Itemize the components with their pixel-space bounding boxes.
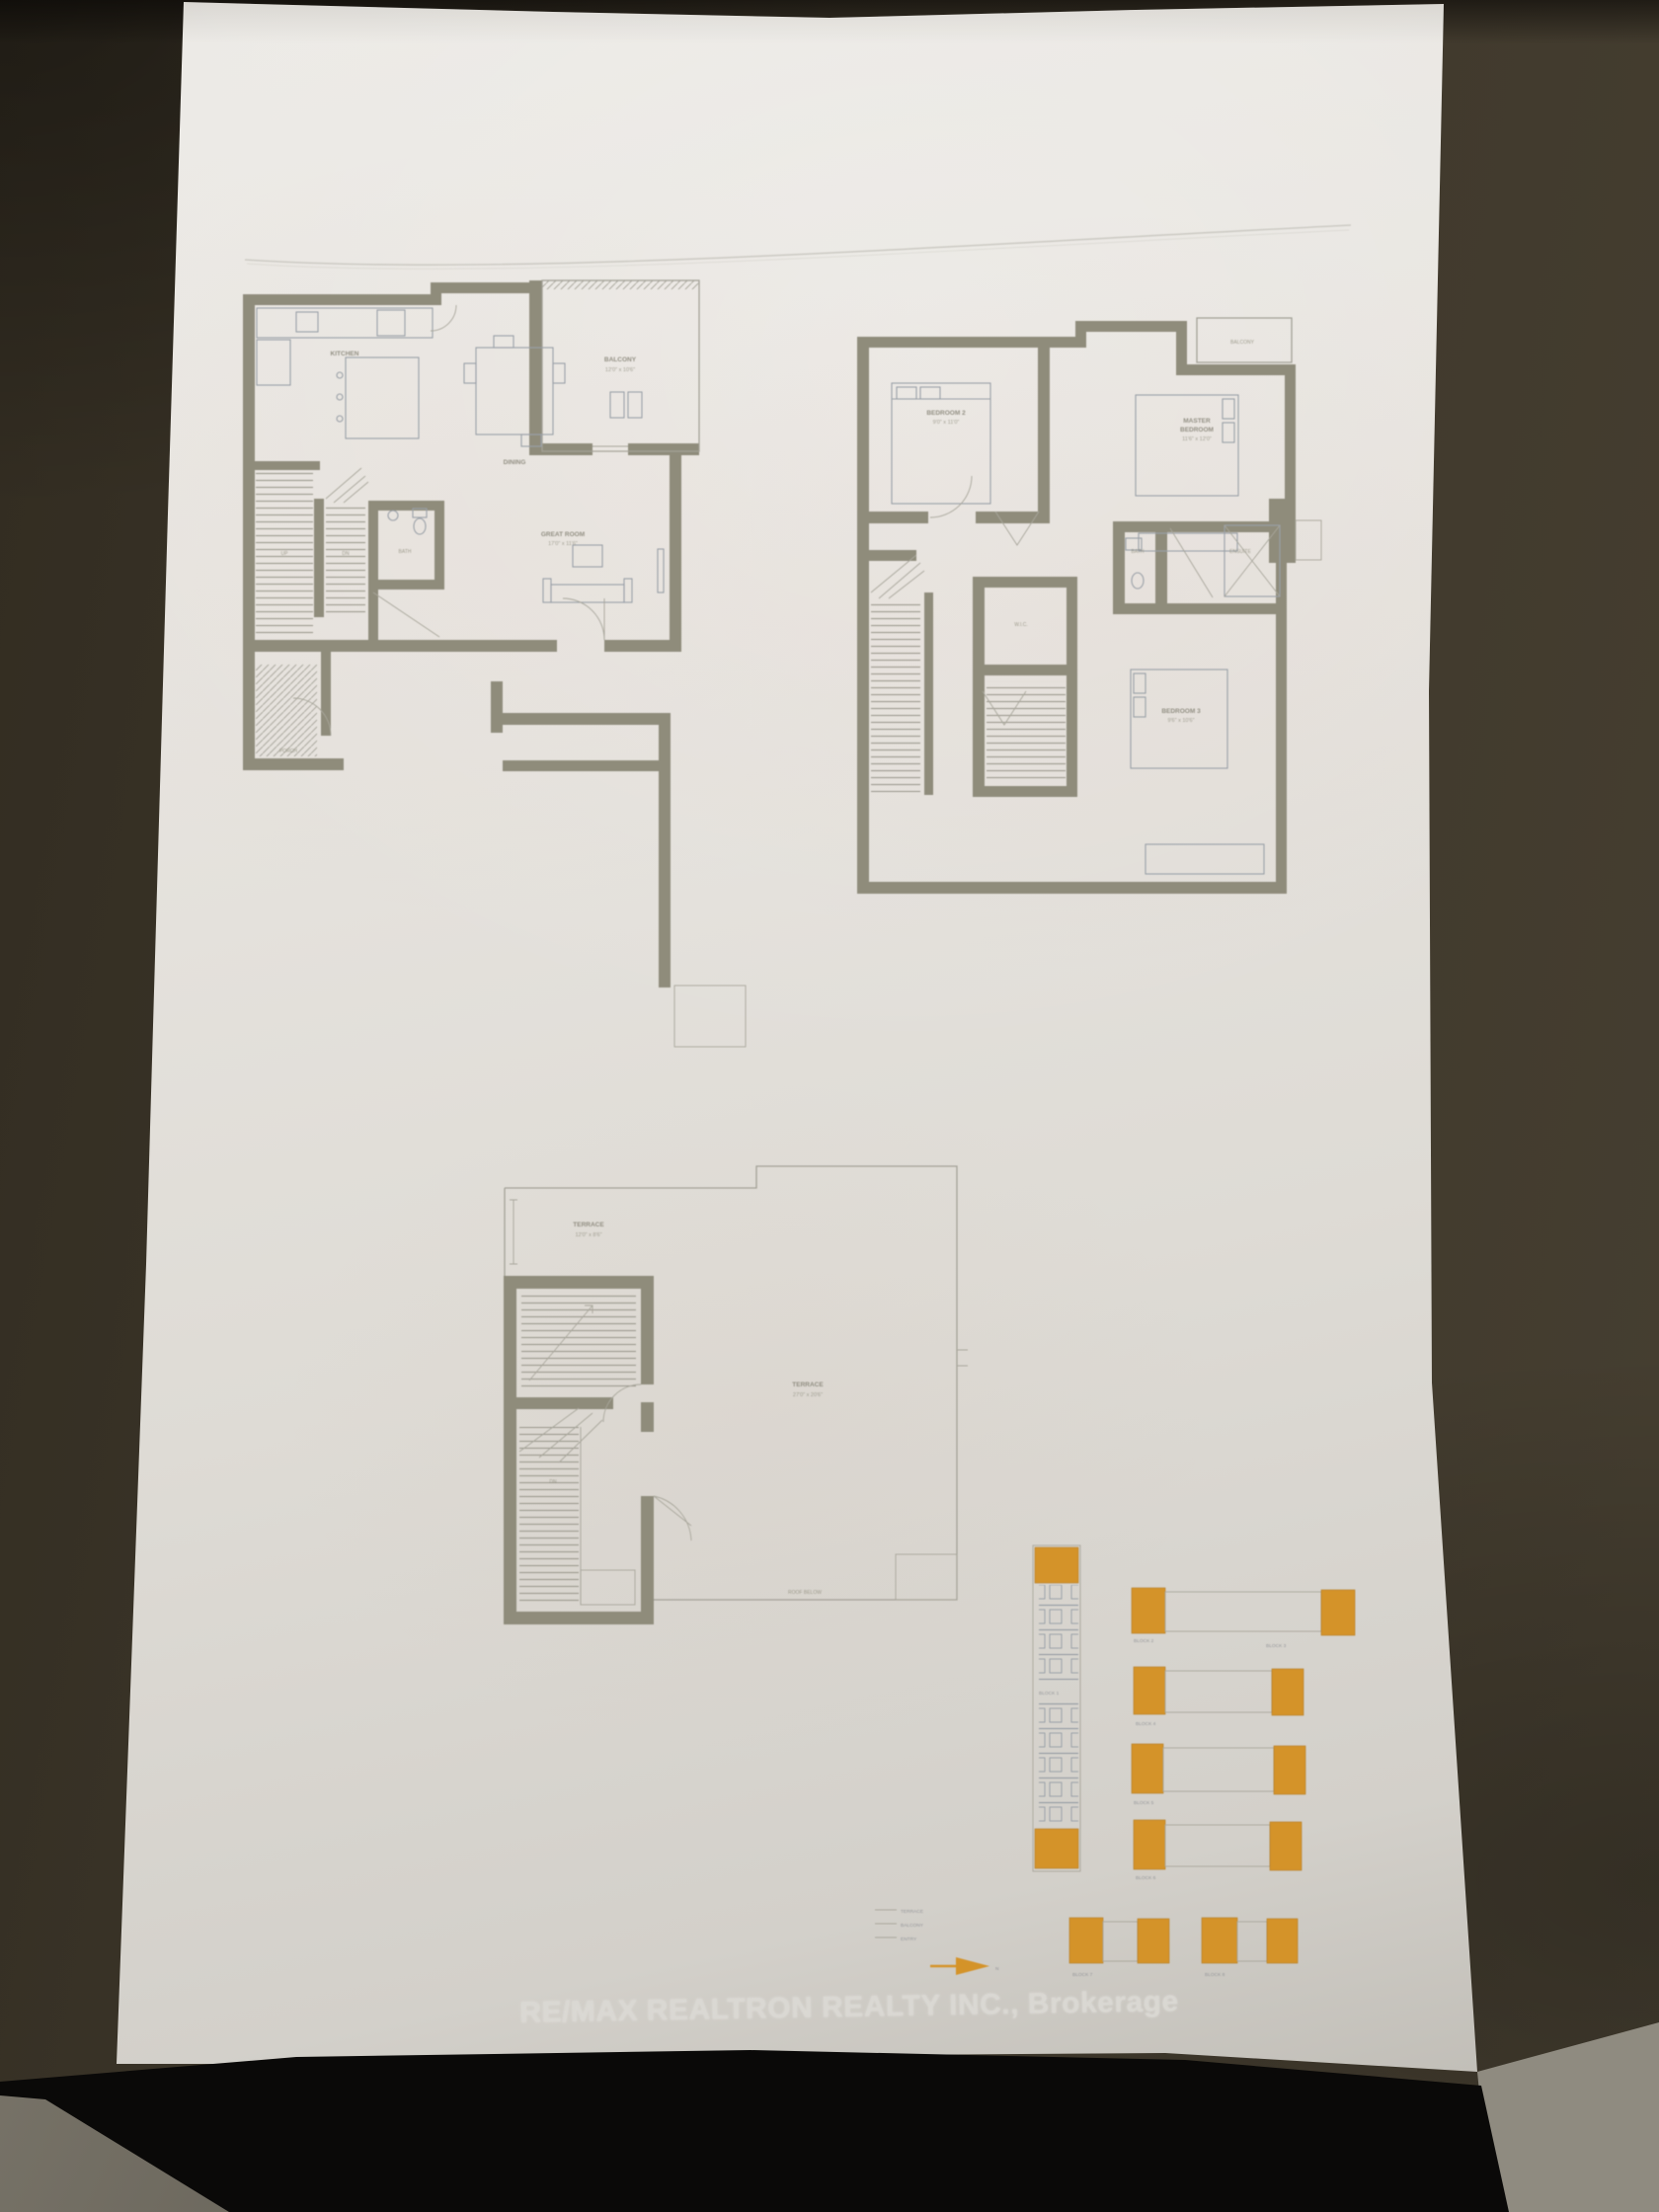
room-dims-terrace-main: 27'0" x 20'6": [793, 1392, 823, 1398]
room-label-master-2: BEDROOM: [1180, 427, 1214, 434]
balcony-outline: [542, 280, 699, 451]
room-label-balcony: BALCONY: [604, 356, 637, 363]
great-room-furniture: [543, 545, 664, 602]
room-label-bedroom3: BEDROOM 3: [1161, 708, 1201, 715]
room-label-master-1: MASTER: [1183, 418, 1211, 425]
room-label-powder: BATH: [399, 549, 412, 555]
legend-item: TERRACE: [901, 1909, 923, 1915]
room-label-balcony2: BALCONY: [1230, 340, 1255, 346]
walls: [857, 321, 1296, 894]
room-label-dining: DINING: [504, 459, 526, 466]
plan-terrace: TERRACE 12'0" x 8'6" TERRACE 27'0" x 20'…: [504, 1166, 968, 1624]
site-row-2: BLOCK 4: [1134, 1667, 1303, 1727]
site-row-1: BLOCK 2 BLOCK 3: [1132, 1588, 1355, 1649]
legend-item: ENTRY: [901, 1936, 917, 1942]
block-label: BLOCK 7: [1072, 1972, 1093, 1978]
block-label: BLOCK 3: [1266, 1643, 1287, 1649]
plan-main-floor: KITCHEN DINING GREAT ROOM 17'0" x 11'6" …: [243, 280, 746, 1047]
powder-room-fixtures: [373, 509, 439, 637]
room-label-porch: PORCH: [279, 749, 297, 754]
room-label-ensuite: ENSUITE: [1229, 549, 1251, 555]
block-label: BLOCK 5: [1134, 1800, 1154, 1806]
stairs-up-label: UP: [281, 551, 289, 557]
room-label-terrace-main: TERRACE: [792, 1382, 824, 1388]
site-pair-right: BLOCK 8: [1202, 1918, 1298, 1978]
room-dims-master: 11'6" x 12'0": [1182, 436, 1212, 442]
stairs-dn-label: DN: [549, 1479, 557, 1485]
site-row-4: BLOCK 6: [1134, 1820, 1302, 1881]
bath-fixtures: [1126, 525, 1280, 597]
plan-second-floor: BEDROOM 2 9'0" x 11'0" MASTER BEDROOM 11…: [857, 318, 1321, 894]
block-label: BLOCK 1: [1039, 1691, 1060, 1697]
site-key: BLOCK 1 BLOCK 2 BLOCK 3 BLOCK 4 BLOCK 5: [875, 1545, 1355, 1978]
legend-item: BALCONY: [901, 1923, 924, 1929]
north-arrow-icon: N: [930, 1957, 999, 1975]
site-row-3: BLOCK 5: [1132, 1744, 1305, 1806]
block-label: BLOCK 4: [1136, 1721, 1156, 1727]
block-label: BLOCK 6: [1136, 1875, 1156, 1881]
block-label: BLOCK 2: [1134, 1638, 1154, 1644]
north-label: N: [995, 1966, 999, 1972]
site-pair-left: BLOCK 7: [1069, 1918, 1169, 1978]
block-label: BLOCK 8: [1205, 1972, 1225, 1978]
room-label-great-room: GREAT ROOM: [541, 531, 585, 538]
kitchen-furniture: [257, 308, 433, 438]
room-label-bath: BATH: [1132, 549, 1145, 555]
site-block-vertical: BLOCK 1: [1033, 1545, 1080, 1871]
bedroom2-furniture: [892, 383, 990, 504]
dining-furniture: [464, 336, 565, 446]
room-dims-bedroom2: 9'0" x 11'0": [933, 420, 960, 426]
photo-of-floor-plan-sheet: KITCHEN DINING GREAT ROOM 17'0" x 11'6" …: [0, 0, 1659, 2212]
room-dims-bedroom3: 9'6" x 10'6": [1167, 718, 1194, 724]
room-label-terrace-small: TERRACE: [573, 1222, 604, 1228]
highlighted-unit: [1035, 1829, 1078, 1868]
stairs-hatch: [519, 1292, 636, 1605]
room-dims-terrace-small: 12'0" x 8'6": [575, 1232, 601, 1238]
stairs-dn-label: DN: [342, 551, 350, 557]
paper-crease: [245, 225, 1351, 269]
room-label-bedroom2: BEDROOM 2: [926, 410, 966, 417]
highlighted-unit: [1035, 1547, 1078, 1583]
roof-note-label: ROOF BELOW: [788, 1590, 822, 1596]
site-legend: TERRACE BALCONY ENTRY: [875, 1909, 924, 1942]
room-dims-balcony: 12'0" x 10'6": [605, 367, 635, 373]
bedroom3-furniture: [1131, 670, 1264, 874]
floor-plan-drawing: KITCHEN DINING GREAT ROOM 17'0" x 11'6" …: [0, 0, 1659, 2212]
room-label-kitchen: KITCHEN: [331, 351, 359, 357]
room-dims-great-room: 17'0" x 11'6": [548, 541, 578, 547]
room-label-wic: W.I.C.: [1014, 622, 1028, 628]
